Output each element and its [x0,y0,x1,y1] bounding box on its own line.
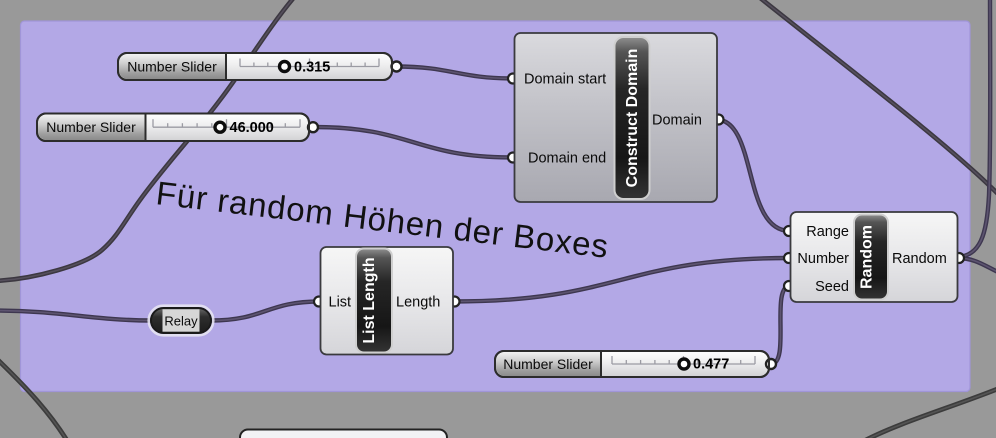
svg-text:Random: Random [892,251,947,267]
svg-text:Random: Random [859,225,876,289]
svg-text:Seed: Seed [815,279,849,295]
svg-text:0.315: 0.315 [294,60,330,76]
svg-text:Number Slider: Number Slider [46,119,136,135]
svg-text:Domain start: Domain start [524,72,606,88]
svg-text:0.477: 0.477 [693,357,729,373]
svg-text:Range: Range [806,224,849,240]
svg-text:Number Slider: Number Slider [503,356,593,372]
svg-text:Length: Length [396,295,440,311]
svg-text:46.000: 46.000 [230,120,274,136]
svg-text:Domain end: Domain end [528,151,606,167]
svg-text:List Length: List Length [361,257,378,343]
svg-text:Domain: Domain [652,113,702,129]
svg-text:Number: Number [797,251,849,267]
svg-text:Relay: Relay [164,314,198,329]
svg-text:List: List [329,295,352,311]
svg-text:Construct Domain: Construct Domain [624,49,641,188]
svg-text:Number Slider: Number Slider [127,59,217,75]
